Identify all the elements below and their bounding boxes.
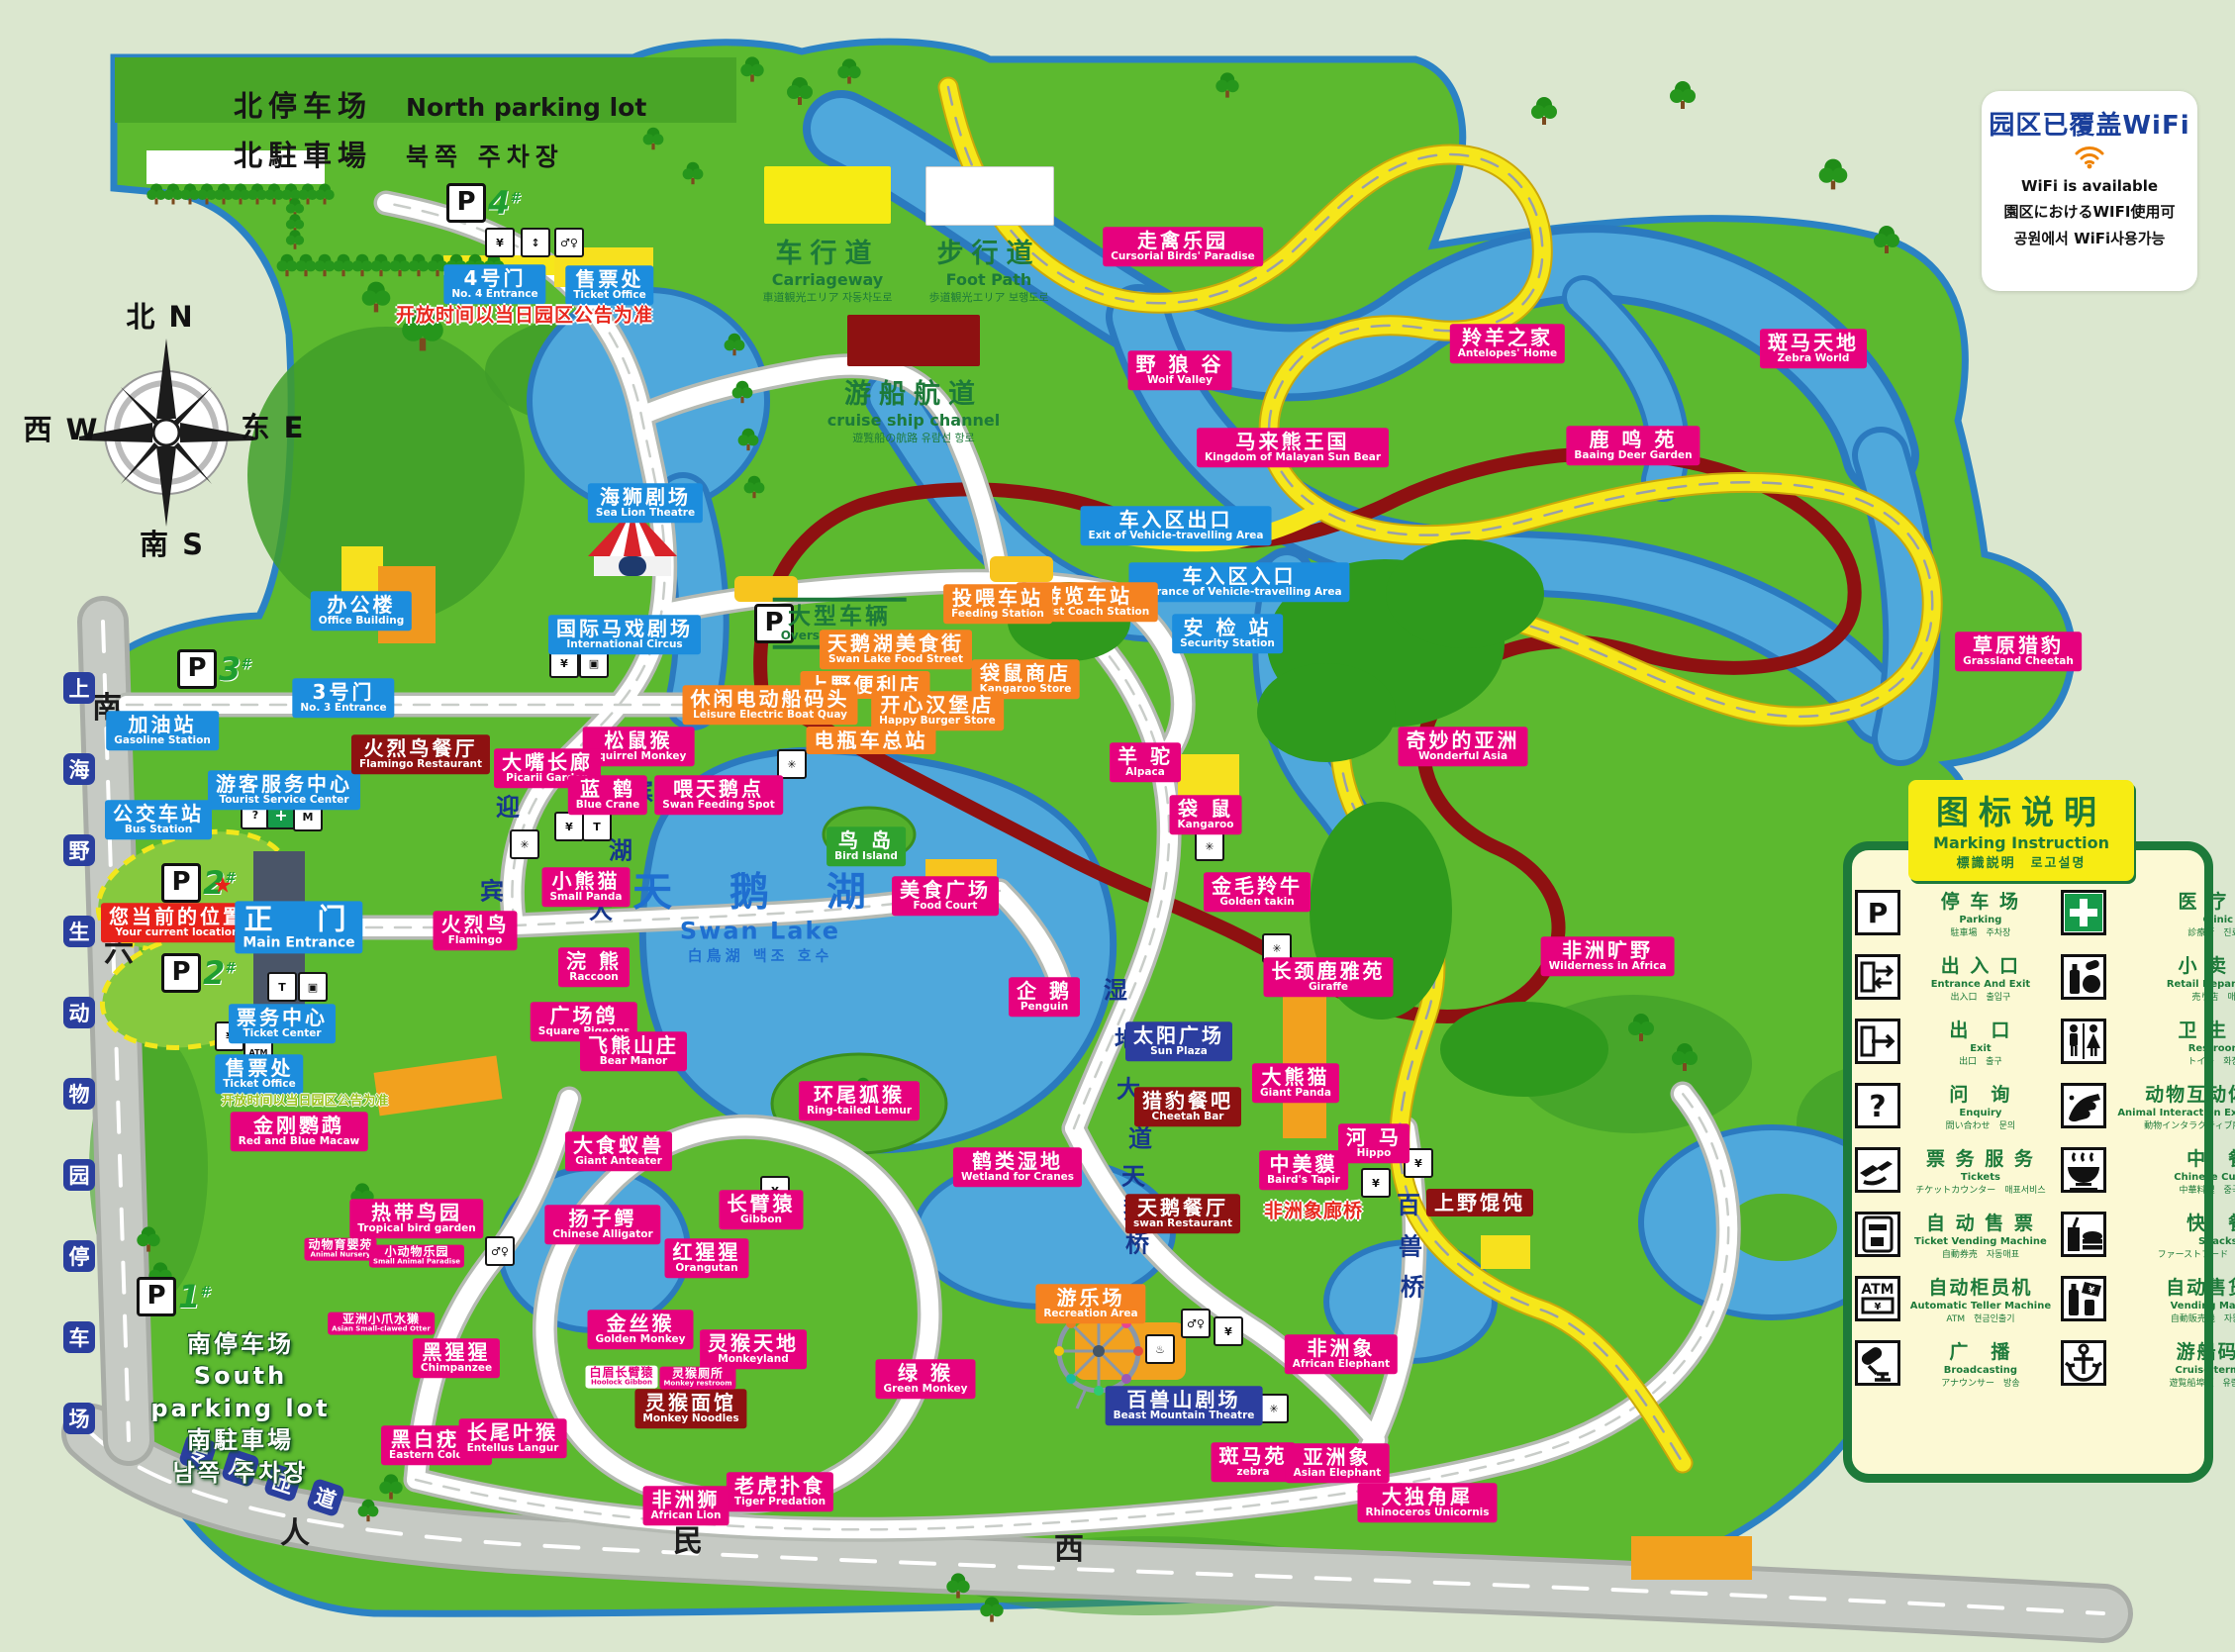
label-cn: 浣 熊 <box>566 950 622 972</box>
legend-cn: 自 动 售 票 <box>1906 1209 2055 1235</box>
label-en: Bear Manor <box>588 1056 679 1068</box>
label-en: Happy Burger Store <box>879 716 996 728</box>
label-cn: 环尾狐猴 <box>807 1084 912 1106</box>
svg-text:P: P <box>1868 897 1889 929</box>
legend-cn: 出 口 <box>1906 1016 2055 1042</box>
label-cn: 太阳广场 <box>1133 1024 1224 1046</box>
retail-icon <box>2061 954 2106 1000</box>
map-label-kangaroo: 袋 鼠Kangaroo <box>1170 795 1242 834</box>
label-cn: 大食蚁兽 <box>573 1134 664 1156</box>
legend-sub: 売り店 매점 <box>2112 990 2235 1003</box>
label-cn: 票务中心 <box>237 1007 328 1028</box>
label-en: Animal Nursery <box>308 1252 372 1260</box>
label-cn: 大熊猫 <box>1260 1066 1331 1088</box>
label-cn: 大独角犀 <box>1365 1486 1489 1507</box>
interaction-icon <box>2061 1083 2106 1128</box>
ramp-band-char: 物 <box>63 1078 95 1110</box>
compass-east: 东 E <box>242 405 306 446</box>
label-cn: 灵猴天地 <box>708 1332 799 1354</box>
north-parking-kr: 북쪽 주차장 <box>406 138 564 173</box>
map-label-cheetah-bar: 猎豹餐吧Cheetah Bar <box>1134 1087 1241 1126</box>
restroom-icon: ♂♀ <box>485 1236 515 1266</box>
map-label-alpaca: 羊 驼Alpaca <box>1110 742 1181 782</box>
tickets-icon: T <box>582 812 612 841</box>
legend-en: Tickets <box>1910 1171 2051 1182</box>
map-label-gasoline-station: 加油站Gasoline Station <box>106 711 219 750</box>
legend-sub: 中華料理 중국음식 <box>2112 1183 2235 1196</box>
compass-rose <box>79 339 253 527</box>
north-parking-tw: 北駐車場 <box>234 133 372 174</box>
label-en: Entellus Langur <box>467 1443 559 1455</box>
legend-sub: トイレ 화장실 <box>2112 1054 2235 1067</box>
map-label-swan-restaurant: 天鹅餐厅swan Restaurant <box>1125 1194 1240 1233</box>
label-en: Squirrel Monkey <box>591 751 687 763</box>
compass-north: 北 N <box>126 294 194 336</box>
legend-cn: 小 卖 部 <box>2112 951 2235 978</box>
map-label-cn-2: 开放时间以当日园区公告为准 <box>388 303 661 330</box>
label-en: Wilderness in Africa <box>1549 961 1667 973</box>
legend-cn: 中 餐 <box>2112 1144 2235 1171</box>
legend-en: Snacks <box>2117 1235 2235 1246</box>
map-label-wilderness-in-africa: 非洲旷野Wilderness in Africa <box>1541 936 1675 976</box>
label-en: Security Station <box>1180 638 1275 650</box>
road-name-char: 天 <box>1121 1157 1145 1192</box>
label-cn: 企 鹅 <box>1017 980 1072 1002</box>
label-en: International Circus <box>556 639 693 651</box>
map-label-hoolock-gibbon: 白眉长臂猿Hoolock Gibbon <box>585 1366 657 1389</box>
anchor-icon <box>2061 1340 2106 1386</box>
vending-icon: ¥ <box>1214 1316 1243 1346</box>
map-label-no-3-entrance: 3号门No. 3 Entrance <box>292 678 394 718</box>
legend-item-snacks: 快 餐Snacksファーストフード 패스트푸드 <box>2061 1209 2235 1260</box>
label-cn: 售票处 <box>223 1057 295 1079</box>
legend-sub: 自動券売 자동매표 <box>1906 1247 2055 1260</box>
parking-icon: P <box>161 953 201 993</box>
ramp-band-char: 海 <box>63 753 95 785</box>
label-en: No. 4 Entrance <box>451 289 537 301</box>
legend-item-parking: P停 车 场Parking駐車場 주차장 <box>1855 887 2055 938</box>
map-label-wonderful-asia: 奇妙的亚洲Wonderful Asia <box>1399 727 1528 766</box>
label-cn: 开心汉堡店 <box>879 694 996 716</box>
label-en: Leisure Electric Boat Quay <box>691 710 850 722</box>
label-en: Bus Station <box>113 825 204 836</box>
map-label-sun-plaza: 太阳广场Sun Plaza <box>1125 1021 1232 1061</box>
label-en: African Elephant <box>1293 1359 1390 1371</box>
label-cn: 小熊猫 <box>549 870 622 892</box>
label-cn: 羊 驼 <box>1117 745 1173 767</box>
label-en: Rhinoceros Unicornis <box>1365 1507 1489 1519</box>
map-label-asian-elephant: 亚洲象Asian Elephant <box>1286 1443 1390 1483</box>
legend-en: Ticket Vending Machine <box>1910 1235 2051 1246</box>
road-name-char: 西 <box>1054 1524 1084 1568</box>
label-en: Golden Monkey <box>595 1334 685 1346</box>
legend-item-entrance-and-exit: 出 入 口Entrance And Exit出入口 출입구 <box>1855 951 2055 1003</box>
parking-number: 4# <box>488 184 520 222</box>
label-cn: 亚洲象 <box>1294 1446 1382 1468</box>
map-label-flamingo-restaurant: 火烈鸟餐厅Flamingo Restaurant <box>351 734 490 774</box>
label-cn: 羚羊之家 <box>1458 327 1557 348</box>
map-label-recreation-area: 游乐场Recreation Area <box>1035 1284 1145 1323</box>
label-en: Orangutan <box>673 1263 741 1275</box>
label-en: Kingdom of Malayan Sun Bear <box>1205 452 1381 464</box>
legend-item-chinese-cuisine: 中 餐Chinese Cuisine中華料理 중국음식 <box>2061 1144 2235 1196</box>
label-en: Ticket Office <box>223 1079 295 1091</box>
parking-marker-p4#: P4# <box>446 183 520 223</box>
label-en: Office Building <box>319 616 404 628</box>
label-en: Blue Crane <box>576 800 639 812</box>
label-en: swan Restaurant <box>1133 1218 1232 1230</box>
legend-cn: 快 餐 <box>2112 1209 2235 1235</box>
legend-item-restrooms: 卫 生 间Restroomsトイレ 화장실 <box>2061 1016 2235 1067</box>
label-cn: 加油站 <box>114 714 211 735</box>
legend-en: Vending Machine <box>2117 1300 2235 1311</box>
north-parking-en: North parking lot <box>406 93 646 122</box>
label-cn: 中美貘 <box>1267 1153 1340 1175</box>
label-cn: 鹤类湿地 <box>961 1150 1074 1172</box>
road-name-char: 宾 <box>480 872 504 907</box>
parking-marker-p3#: P3# <box>177 649 250 689</box>
svg-text:?: ? <box>1869 1090 1886 1124</box>
legend-en: Entrance And Exit <box>1910 978 2051 989</box>
label-cn: 3号门 <box>300 681 386 703</box>
label-cn: 马来熊王国 <box>1205 431 1381 452</box>
legend-sub: 駐車場 주차장 <box>1906 925 2055 938</box>
map-label-ticket-office: 售票处Ticket Office <box>215 1054 303 1094</box>
label-cn: 非洲狮 <box>651 1489 722 1510</box>
carriageway-swatch <box>764 166 891 224</box>
legend-en: Parking <box>1910 914 2051 924</box>
map-label-baaing-deer-garden: 鹿 鸣 苑Baaing Deer Garden <box>1566 426 1700 465</box>
label-cn: 电瓶车总站 <box>815 729 928 751</box>
legend-item-broadcasting: 广 播Broadcastingアナウンサー 방송 <box>1855 1337 2055 1389</box>
label-cn: 热带鸟园 <box>357 1202 475 1223</box>
legend-cn: 出 入 口 <box>1906 951 2055 978</box>
label-en: Monkeyland <box>708 1354 799 1366</box>
label-en: Flamingo Restaurant <box>359 759 482 771</box>
road-name-char: 湿 <box>1104 971 1127 1006</box>
label-en: No. 3 Entrance <box>300 703 386 715</box>
label-en: Red and Blue Macaw <box>239 1136 360 1148</box>
label-en: Giraffe <box>1272 982 1386 994</box>
label-en: Feeding Station <box>951 609 1044 621</box>
label-cn: 河 马 <box>1346 1126 1402 1148</box>
label-cn: 售票处 <box>573 268 645 290</box>
map-label-tiger-predation: 老虎扑食Tiger Predation <box>727 1472 833 1511</box>
animal-interaction-icon: ✳ <box>1195 831 1224 861</box>
label-en: Wetland for Cranes <box>961 1172 1074 1184</box>
label-cn: 4号门 <box>451 267 537 289</box>
legend-en: Exit <box>1910 1042 2051 1053</box>
label-cn: 金丝猴 <box>595 1312 685 1334</box>
label-cn: 天鹅餐厅 <box>1133 1197 1232 1218</box>
label-cn: 大嘴长廊 <box>502 751 593 773</box>
map-label-antelopes-home: 羚羊之家Antelopes' Home <box>1450 324 1565 363</box>
map-label-zebra: 斑马苑zebra <box>1212 1442 1296 1482</box>
label-en: Tropical bird garden <box>357 1223 475 1235</box>
ramp-band-char: 动 <box>63 997 95 1028</box>
elevator-icon: ↕ <box>521 228 550 257</box>
svg-text:ATM: ATM <box>1861 1282 1894 1298</box>
map-label-african-elephant: 非洲象African Elephant <box>1285 1334 1398 1374</box>
label-en: Antelopes' Home <box>1458 348 1557 360</box>
label-cn: 斑马苑 <box>1219 1445 1288 1467</box>
legend-cn: 卫 生 间 <box>2112 1016 2235 1042</box>
label-en: Alpaca <box>1117 767 1173 779</box>
wifi-notice: 园区已覆盖WiFi WiFi is available 園区におけるWIFI使用… <box>1982 91 2197 291</box>
map-label-cn-60: 非洲象廊桥 <box>1256 1199 1371 1225</box>
map-label-entellus-langur: 长尾叶猴Entellus Langur <box>459 1418 567 1458</box>
map-label-orangutan: 红猩猩Orangutan <box>665 1238 749 1278</box>
tickets-icon <box>1855 1147 1900 1193</box>
ramp-band-char: 上 <box>63 672 95 704</box>
parking-icon: P <box>137 1277 176 1316</box>
map-label-chimpanzee: 黑猩猩Chimpanzee <box>413 1338 500 1378</box>
label-en: Beast Mountain Theatre <box>1114 1410 1255 1422</box>
legend-en: Animal Interaction ExperiencingSite <box>2117 1107 2235 1118</box>
south-parking-title: 南停车场 South parking lot 南駐車場 남쪽 주차장 <box>127 1328 354 1489</box>
label-en: Giant Anteater <box>573 1156 664 1168</box>
label-cn: 国际马戏剧场 <box>556 618 693 639</box>
map-label-hippo: 河 马Hippo <box>1338 1123 1409 1163</box>
carriageway-legend: 车行道 Carriageway 車道観光エリア 자동차도로 <box>762 232 892 305</box>
label-cn: 鸟 岛 <box>834 829 898 851</box>
parking-icon: P <box>161 863 201 903</box>
current-location-star: ★ <box>213 874 233 899</box>
label-en: Ticket Office <box>573 290 645 302</box>
legend-cn: 票 务 服 务 <box>1906 1144 2055 1171</box>
swan-lake-title: 天 鹅 湖 Swan Lake 白鳥湖 백조 호수 <box>632 860 888 966</box>
label-en: Kangaroo <box>1178 820 1234 831</box>
legend-sub: 遊覧船埠頭 유람선 부두 <box>2112 1376 2235 1389</box>
map-label-small-panda: 小熊猫Small Panda <box>541 867 630 907</box>
cruise-swatch <box>847 315 980 366</box>
road-name-char: 百 <box>1397 1186 1420 1220</box>
label-en: Main Entrance <box>243 935 354 950</box>
map-label-chinese-alligator: 扬子鳄Chinese Alligator <box>544 1205 660 1244</box>
label-cn: 走禽乐园 <box>1111 230 1255 251</box>
footpath-legend: 步行道 Foot Path 歩道観光エリア 보행도로 <box>929 232 1049 305</box>
label-cn: 灵猴面馆 <box>642 1392 738 1413</box>
map-label-beast-mountain-theatre: 百兽山剧场Beast Mountain Theatre <box>1106 1386 1263 1425</box>
label-cn: 火烈鸟餐厅 <box>359 737 482 759</box>
map-label-exit-of-vehicle-travelling-area: 车入区出口Exit of Vehicle-travelling Area <box>1081 506 1272 545</box>
label-en: Small Animal Paradise <box>373 1259 460 1267</box>
label-cn: 蓝 鹤 <box>576 778 639 800</box>
label-cn: 猎豹餐吧 <box>1142 1090 1233 1112</box>
label-en: Small Panda <box>549 892 622 904</box>
label-cn: 野 狼 谷 <box>1136 353 1224 375</box>
legend-item-retail-department: 小 卖 部Retail Department売り店 매점 <box>2061 951 2235 1003</box>
map-label-main-entrance: 正 门Main Entrance <box>235 901 362 953</box>
label-en: Chinese Alligator <box>552 1229 652 1241</box>
label-cn: 百兽山剧场 <box>1114 1389 1255 1410</box>
ramp-band-char: 场 <box>63 1403 95 1434</box>
label-cn: 袋鼠商店 <box>980 662 1072 684</box>
legend-en: Clinic <box>2117 914 2235 924</box>
label-cn: 天鹅湖美食街 <box>827 632 964 654</box>
legend-sub: 出入口 출입구 <box>1906 990 2055 1003</box>
label-en: Hippo <box>1346 1148 1402 1160</box>
map-label-bus-station: 公交车站Bus Station <box>105 800 212 839</box>
map-label-happy-burger-store: 开心汉堡店Happy Burger Store <box>871 691 1004 730</box>
map-label-golden-takin: 金毛羚牛Golden takin <box>1204 872 1311 912</box>
zoo-park-map: 北停车场 North parking lot 北駐車場 북쪽 주차장 南停车场 … <box>0 0 2235 1652</box>
legend-sub: チケットカウンター 매표서비스 <box>1906 1183 2055 1196</box>
label-cn: 松鼠猴 <box>591 729 687 751</box>
label-en: Swan Lake Food Street <box>827 654 964 666</box>
enquiry-icon: ? <box>1855 1083 1900 1128</box>
legend-cn: 游船码头 <box>2112 1337 2235 1364</box>
map-label-feeding-station: 投喂车站Feeding Station <box>943 584 1052 624</box>
legend-en: Cruise terminal <box>2117 1364 2235 1375</box>
label-en: Flamingo <box>441 935 510 947</box>
svg-text:¥: ¥ <box>1875 1302 1882 1312</box>
label-cn: 扬子鳄 <box>552 1208 652 1229</box>
label-en: Tiger Predation <box>734 1497 826 1508</box>
vendticket-icon <box>1855 1212 1900 1257</box>
label-cn: 非洲象 <box>1293 1337 1390 1359</box>
legend-cn: 广 播 <box>1906 1337 2055 1364</box>
parking-icon: P <box>177 649 217 689</box>
map-label-grassland-cheetah: 草原猎豹Grassland Cheetah <box>1955 632 2082 671</box>
label-cn: 美食广场 <box>900 879 991 901</box>
map-label-food-court: 美食广场Food Court <box>892 876 999 916</box>
label-en: Swan Feeding Spot <box>662 800 775 812</box>
label-en: Golden takin <box>1212 897 1303 909</box>
parking-icon: P <box>446 183 486 223</box>
label-cn: 车入区出口 <box>1089 509 1264 531</box>
map-label-ring-tailed-lemur: 环尾狐猴Ring-tailed Lemur <box>799 1081 920 1120</box>
north-parking-cn: 北停车场 <box>234 83 372 125</box>
footpath-swatch <box>925 166 1054 226</box>
map-label-rhinoceros-unicornis: 大独角犀Rhinoceros Unicornis <box>1357 1483 1497 1522</box>
map-label-small-animal-paradise: 小动物乐园Small Animal Paradise <box>369 1245 464 1268</box>
label-cn: 黑猩猩 <box>421 1341 492 1363</box>
map-label-african-lion: 非洲狮African Lion <box>643 1486 729 1525</box>
restroom-icon <box>2061 1019 2106 1064</box>
legend-cn: 自动柜员机 <box>1906 1273 2055 1300</box>
label-en: Wolf Valley <box>1136 375 1224 387</box>
legend-sub: アナウンサー 방송 <box>1906 1376 2055 1389</box>
clinic-icon <box>2061 890 2106 935</box>
label-cn: 办公楼 <box>319 594 404 616</box>
map-label-ticket-office: 售票处Ticket Office <box>565 265 653 305</box>
snacks-icon <box>2061 1212 2106 1257</box>
label-en: Your current location <box>109 927 245 939</box>
map-label-golden-monkey: 金丝猴Golden Monkey <box>587 1310 693 1349</box>
ramp-band-char: 野 <box>63 834 95 866</box>
label-cn: 大型车辆 <box>781 605 899 630</box>
label-en: Sea Lion Theatre <box>596 508 695 520</box>
broadcast-icon <box>1855 1340 1900 1386</box>
map-label-ticket-center: 票务中心Ticket Center <box>229 1004 336 1043</box>
label-cn: 长颈鹿雅苑 <box>1272 960 1386 982</box>
label-cn: 游客服务中心 <box>216 773 352 795</box>
legend-en: Chinese Cuisine <box>2117 1171 2235 1182</box>
ramp-band-char: 停 <box>63 1240 95 1272</box>
map-label-wetland-for-cranes: 鹤类湿地Wetland for Cranes <box>953 1147 1082 1187</box>
compass-west: 西 W <box>23 407 99 448</box>
label-en: Raccoon <box>566 972 622 984</box>
label-en: Tourist Service Center <box>216 795 352 807</box>
label-cn: 长臂猿 <box>728 1193 796 1215</box>
label-en: Gasoline Station <box>114 735 211 747</box>
label-cn: 车入区入口 <box>1136 565 1341 587</box>
vending-icon: ¥ <box>554 812 584 841</box>
label-cn: 金刚鹦鹉 <box>239 1115 360 1136</box>
legend-item-cruise-terminal: 游船码头Cruise terminal遊覧船埠頭 유람선 부두 <box>2061 1337 2235 1389</box>
legend-en: Restrooms <box>2117 1042 2235 1053</box>
map-label-kingdom-of-malayan-sun-bear: 马来熊王国Kingdom of Malayan Sun Bear <box>1197 428 1389 467</box>
label-en: Food Court <box>900 901 991 913</box>
ramp-band-char: 园 <box>63 1159 95 1191</box>
legend-grid: P停 车 场Parking駐車場 주차장医 疗 点Clinic診療所 진료소出 … <box>1855 887 2191 1389</box>
label-cn: 休闲电动船码头 <box>691 688 850 710</box>
map-label-cn-27: 电瓶车总站 <box>807 727 936 754</box>
label-cn: 红猩猩 <box>673 1241 741 1263</box>
label-en: Penguin <box>1017 1002 1072 1014</box>
map-label-security-station: 安 检 站Security Station <box>1172 614 1283 653</box>
legend-sub: 出口 출구 <box>1906 1054 2055 1067</box>
label-en: Giant Panda <box>1260 1088 1331 1100</box>
legend-sub: ATM 현금인출기 <box>1906 1312 2055 1324</box>
label-en: Ring-tailed Lemur <box>807 1106 912 1118</box>
label-en: Baaing Deer Garden <box>1574 450 1692 462</box>
exit-icon <box>1855 1019 1900 1064</box>
label-cn: 绿 猴 <box>884 1362 968 1384</box>
label-en: Bird Island <box>834 851 898 863</box>
label-cn: 火烈鸟 <box>441 914 510 935</box>
map-label-baird-s-tapir: 中美貘Baird's Tapir <box>1259 1150 1348 1190</box>
cruise-legend: 游船航道 cruise ship channel 遊覧船の航路 유람선 항로 <box>827 372 1000 445</box>
legend-item-clinic: 医 疗 点Clinic診療所 진료소 <box>2061 887 2235 938</box>
cuisine-icon <box>2061 1147 2106 1193</box>
map-label-leisure-electric-boat-quay: 休闲电动船码头Leisure Electric Boat Quay <box>683 685 858 725</box>
label-cn: 广场鸽 <box>538 1005 630 1026</box>
vending-icon: ¥ <box>1361 1168 1391 1198</box>
map-label-tropical-bird-garden: 热带鸟园Tropical bird garden <box>349 1199 483 1238</box>
map-label-your-current-location: 您当前的位置Your current location <box>101 903 253 942</box>
map-label-swan-lake-food-street: 天鹅湖美食街Swan Lake Food Street <box>820 630 972 669</box>
entrance-icon <box>1855 954 1900 1000</box>
label-cn: 草原猎豹 <box>1963 634 2074 656</box>
label-en: zebra <box>1219 1467 1288 1479</box>
label-en: Monkey Noodles <box>642 1413 738 1425</box>
map-label-penguin: 企 鹅Penguin <box>1009 977 1080 1017</box>
map-label-wolf-valley: 野 狼 谷Wolf Valley <box>1128 350 1232 390</box>
map-label-no-4-entrance: 4号门No. 4 Entrance <box>443 264 545 304</box>
compass-south: 南 S <box>140 522 205 563</box>
legend-en: Automatic Teller Machine <box>1910 1300 2051 1311</box>
label-cn: 非洲旷野 <box>1549 939 1667 961</box>
label-en: Exit of Vehicle-travelling Area <box>1089 531 1264 542</box>
label-en: Zebra World <box>1768 353 1859 365</box>
label-cn: 游乐场 <box>1043 1287 1137 1309</box>
restaurant-icon: ♨ <box>1145 1334 1175 1364</box>
label-cn: 袋 鼠 <box>1178 798 1234 820</box>
legend-sub: 動物インタラクティブ所 동물체험장 <box>2112 1118 2235 1131</box>
label-cn: 金毛羚牛 <box>1212 875 1303 897</box>
map-label-sea-lion-theatre: 海狮剧场Sea Lion Theatre <box>588 483 703 523</box>
road-name-char: 湖 <box>609 831 632 866</box>
vending-icon: ¥ <box>2061 1276 2106 1321</box>
legend-en: Retail Department <box>2117 978 2235 989</box>
legend-sub: 診療所 진료소 <box>2112 925 2235 938</box>
legend-cn: 医 疗 点 <box>2112 887 2235 914</box>
legend-cn: 停 车 场 <box>1906 887 2055 914</box>
parking-marker-p1#: P1# <box>137 1277 210 1316</box>
label-cn: 开放时间以当日园区公告为准 <box>221 1095 388 1109</box>
